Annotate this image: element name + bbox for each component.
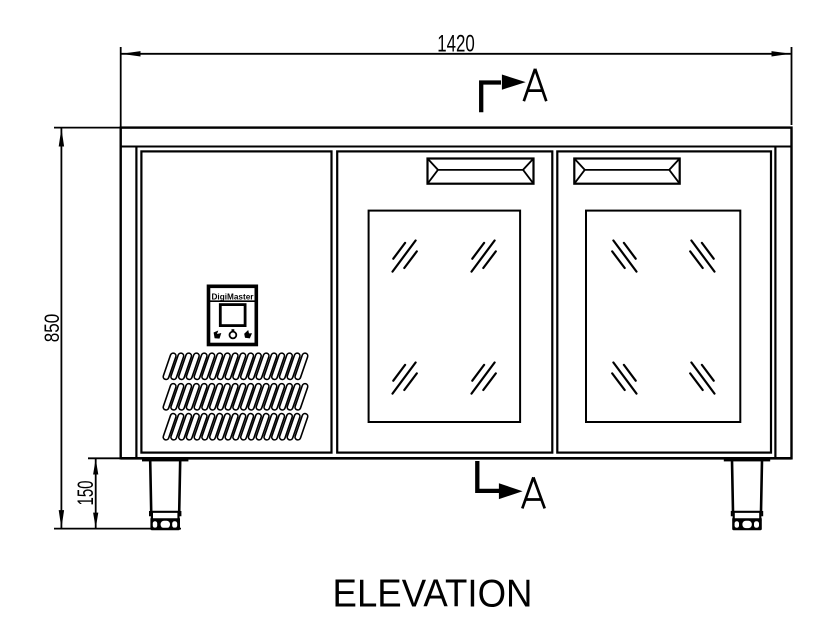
svg-text:DigiMaster: DigiMaster (212, 292, 255, 302)
svg-text:150: 150 (73, 481, 98, 506)
svg-text:850: 850 (41, 314, 64, 343)
svg-text:ELEVATION: ELEVATION (333, 572, 533, 615)
svg-text:1420: 1420 (437, 31, 475, 58)
